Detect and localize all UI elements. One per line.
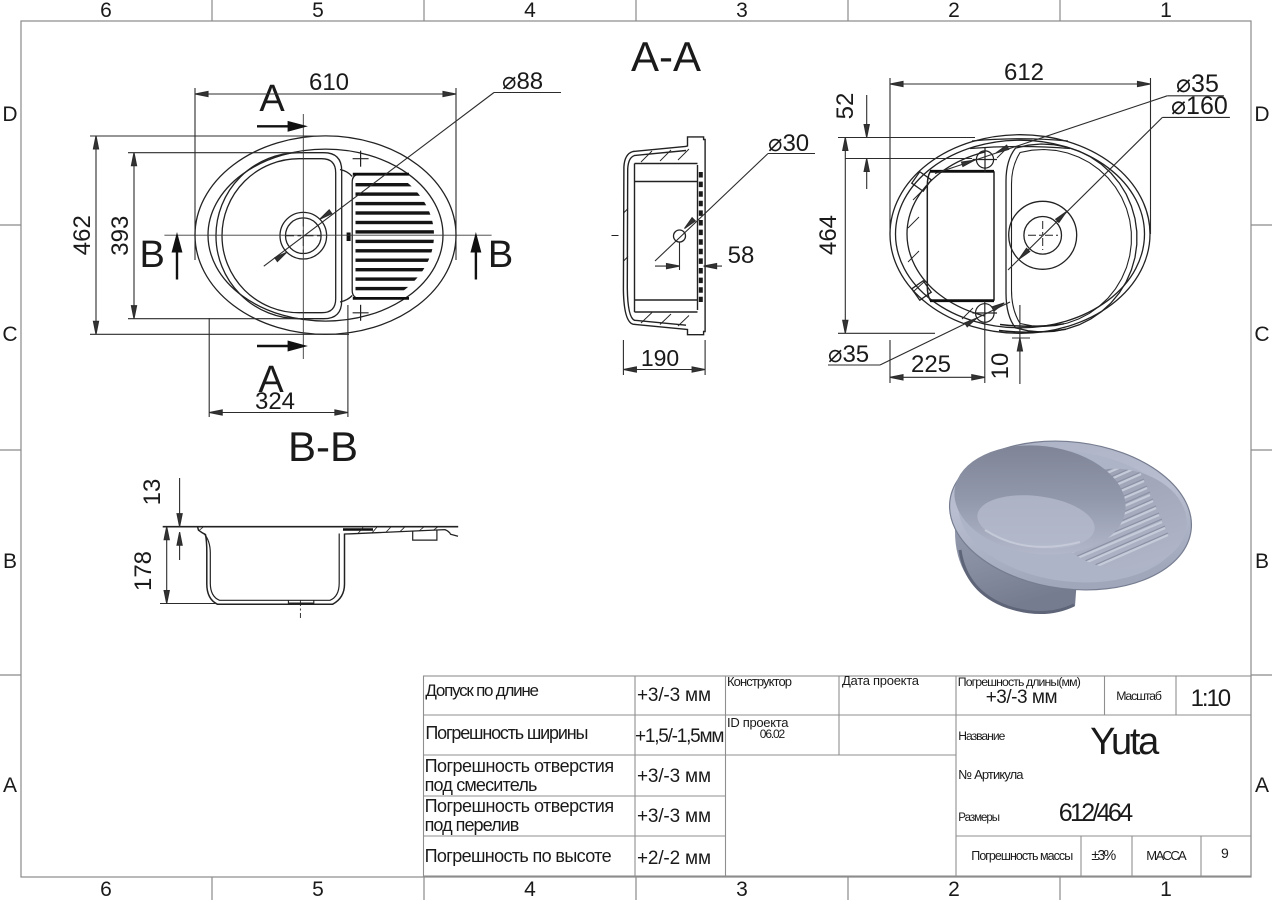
svg-text:Погрешность по высоте: Погрешность по высоте: [425, 846, 612, 866]
svg-text:2: 2: [948, 878, 960, 900]
svg-text:D: D: [1254, 103, 1269, 126]
svg-text:6: 6: [100, 0, 112, 22]
svg-text:B: B: [140, 234, 165, 276]
svg-text:612/464: 612/464: [1059, 799, 1133, 827]
svg-text:Погрешность ширины: Погрешность ширины: [425, 723, 588, 743]
svg-text:190: 190: [641, 345, 679, 371]
svg-text:Название: Название: [958, 729, 1005, 743]
svg-text:A: A: [259, 78, 285, 120]
svg-text:9: 9: [1221, 845, 1229, 861]
svg-text:178: 178: [130, 551, 157, 591]
svg-text:+1,5/-1,5мм: +1,5/-1,5мм: [635, 726, 724, 747]
svg-text:D: D: [2, 103, 17, 126]
svg-text:4: 4: [524, 878, 536, 900]
svg-text:под смеситель: под смеситель: [425, 775, 538, 795]
svg-text:324: 324: [255, 388, 295, 415]
svg-text:+3/-3 мм: +3/-3 мм: [637, 766, 711, 787]
svg-text:1: 1: [1160, 0, 1172, 22]
svg-text:Дата проекта: Дата проекта: [842, 673, 920, 688]
svg-text:+3/-3 мм: +3/-3 мм: [637, 685, 711, 706]
svg-text:5: 5: [312, 878, 324, 900]
svg-text:52: 52: [832, 93, 859, 120]
svg-text:4: 4: [524, 0, 536, 22]
svg-text:10: 10: [987, 353, 1014, 380]
svg-text:3: 3: [736, 878, 748, 900]
svg-text:13: 13: [139, 479, 166, 506]
svg-text:A: A: [1255, 774, 1269, 797]
svg-text:393: 393: [107, 216, 134, 256]
svg-text:612: 612: [1004, 59, 1044, 86]
svg-text:B: B: [488, 234, 513, 276]
svg-text:B-B: B-B: [288, 423, 358, 470]
svg-text:МАССА: МАССА: [1146, 848, 1187, 863]
svg-text:+3/-3 мм: +3/-3 мм: [637, 806, 711, 827]
svg-text:Погрешность массы: Погрешность массы: [971, 849, 1073, 863]
svg-text:Yuta: Yuta: [1090, 721, 1160, 763]
svg-text:5: 5: [312, 0, 324, 22]
svg-text:1: 1: [1160, 878, 1172, 900]
svg-text:610: 610: [309, 69, 349, 96]
svg-text:Допуск по длине: Допуск по длине: [425, 681, 539, 700]
svg-text:Масштаб: Масштаб: [1116, 689, 1162, 703]
svg-text:⌀88: ⌀88: [502, 68, 543, 95]
svg-text:B: B: [1255, 550, 1269, 573]
svg-text:+3/-3 мм: +3/-3 мм: [986, 687, 1058, 708]
svg-text:C: C: [1254, 323, 1269, 346]
svg-text:⌀160: ⌀160: [1171, 92, 1228, 120]
svg-text:1:10: 1:10: [1191, 685, 1232, 712]
svg-text:Погрешность отверстия: Погрешность отверстия: [425, 756, 614, 776]
svg-text:A: A: [3, 774, 17, 797]
svg-text:⌀30: ⌀30: [768, 130, 809, 157]
svg-text:2: 2: [948, 0, 960, 22]
svg-text:A-A: A-A: [631, 33, 701, 80]
svg-text:C: C: [2, 323, 17, 346]
svg-text:58: 58: [728, 242, 755, 269]
svg-text:B: B: [3, 550, 17, 573]
svg-text:464: 464: [815, 215, 842, 255]
svg-text:⌀35: ⌀35: [828, 341, 869, 368]
svg-text:Погрешность отверстия: Погрешность отверстия: [425, 796, 614, 816]
svg-text:462: 462: [69, 215, 96, 255]
svg-text:под перелив: под перелив: [425, 815, 520, 835]
svg-text:06.02: 06.02: [760, 727, 786, 741]
svg-text:Размеры: Размеры: [958, 812, 1000, 824]
svg-text:Конструктор: Конструктор: [727, 674, 792, 689]
svg-text:225: 225: [911, 351, 951, 378]
svg-text:3: 3: [736, 0, 748, 22]
svg-text:6: 6: [100, 878, 112, 900]
svg-text:№ Артикула: № Артикула: [958, 767, 1024, 782]
svg-text:±3%: ±3%: [1091, 848, 1116, 864]
svg-text:+2/-2 мм: +2/-2 мм: [637, 848, 711, 869]
